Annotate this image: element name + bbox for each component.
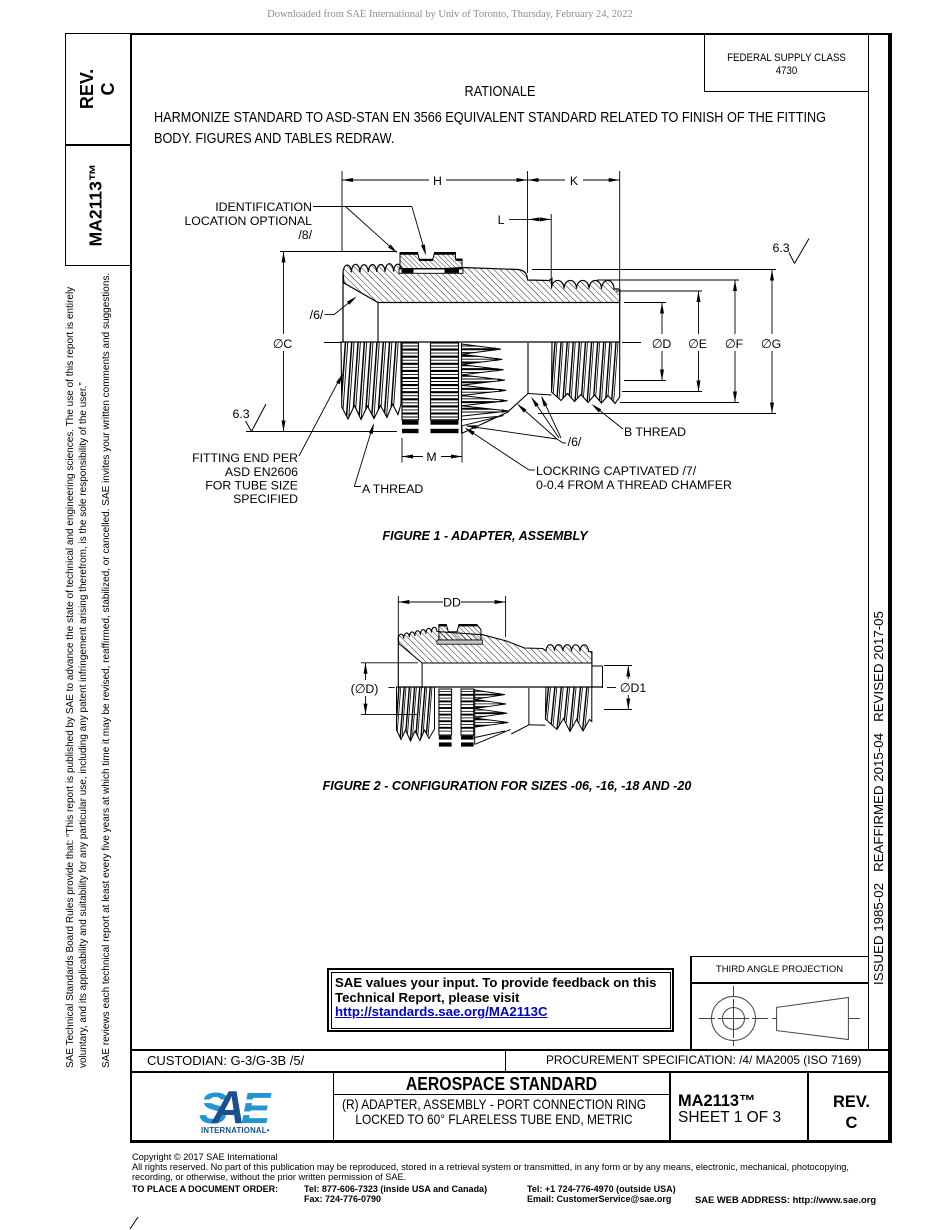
svg-text:FOR TUBE SIZE: FOR TUBE SIZE: [205, 479, 298, 493]
svg-text:/8/: /8/: [298, 228, 312, 242]
svg-text:∅D: ∅D: [652, 337, 672, 351]
svg-text:6.3: 6.3: [232, 407, 249, 421]
svg-text:M: M: [426, 450, 436, 464]
svg-text:6.3: 6.3: [772, 241, 789, 255]
svg-text:/6/: /6/: [568, 435, 582, 449]
svg-text:B THREAD: B THREAD: [624, 425, 686, 439]
svg-text:/6/: /6/: [310, 308, 324, 322]
svg-text:(∅D): (∅D): [351, 682, 379, 696]
svg-text:LOCKRING CAPTIVATED /7/: LOCKRING CAPTIVATED /7/: [536, 464, 697, 478]
svg-text:IDENTIFICATION: IDENTIFICATION: [215, 200, 312, 214]
svg-text:FIGURE 2 - CONFIGURATION FOR S: FIGURE 2 - CONFIGURATION FOR SIZES -06, …: [323, 779, 692, 793]
svg-text:L: L: [498, 213, 505, 227]
svg-text:ASD EN2606: ASD EN2606: [225, 465, 298, 479]
svg-text:SPECIFIED: SPECIFIED: [233, 492, 298, 506]
svg-text:∅F: ∅F: [725, 337, 744, 351]
svg-text:FITTING END PER: FITTING END PER: [192, 451, 298, 465]
svg-text:H: H: [433, 174, 442, 188]
svg-text:∅G: ∅G: [761, 337, 781, 351]
svg-text:∅D1: ∅D1: [620, 681, 647, 695]
svg-text:∅E: ∅E: [688, 337, 707, 351]
svg-text:0-0.4 FROM A THREAD CHAMFER: 0-0.4 FROM A THREAD CHAMFER: [536, 478, 732, 492]
svg-text:A THREAD: A THREAD: [362, 482, 423, 496]
svg-text:INTERNATIONAL•: INTERNATIONAL•: [201, 1126, 270, 1135]
svg-text:FIGURE 1 - ADAPTER, ASSEMBLY: FIGURE 1 - ADAPTER, ASSEMBLY: [382, 529, 589, 543]
svg-text:LOCATION OPTIONAL: LOCATION OPTIONAL: [184, 214, 312, 228]
svg-text:DD: DD: [443, 596, 461, 610]
svg-text:K: K: [570, 174, 579, 188]
svg-text:∅C: ∅C: [273, 337, 293, 351]
